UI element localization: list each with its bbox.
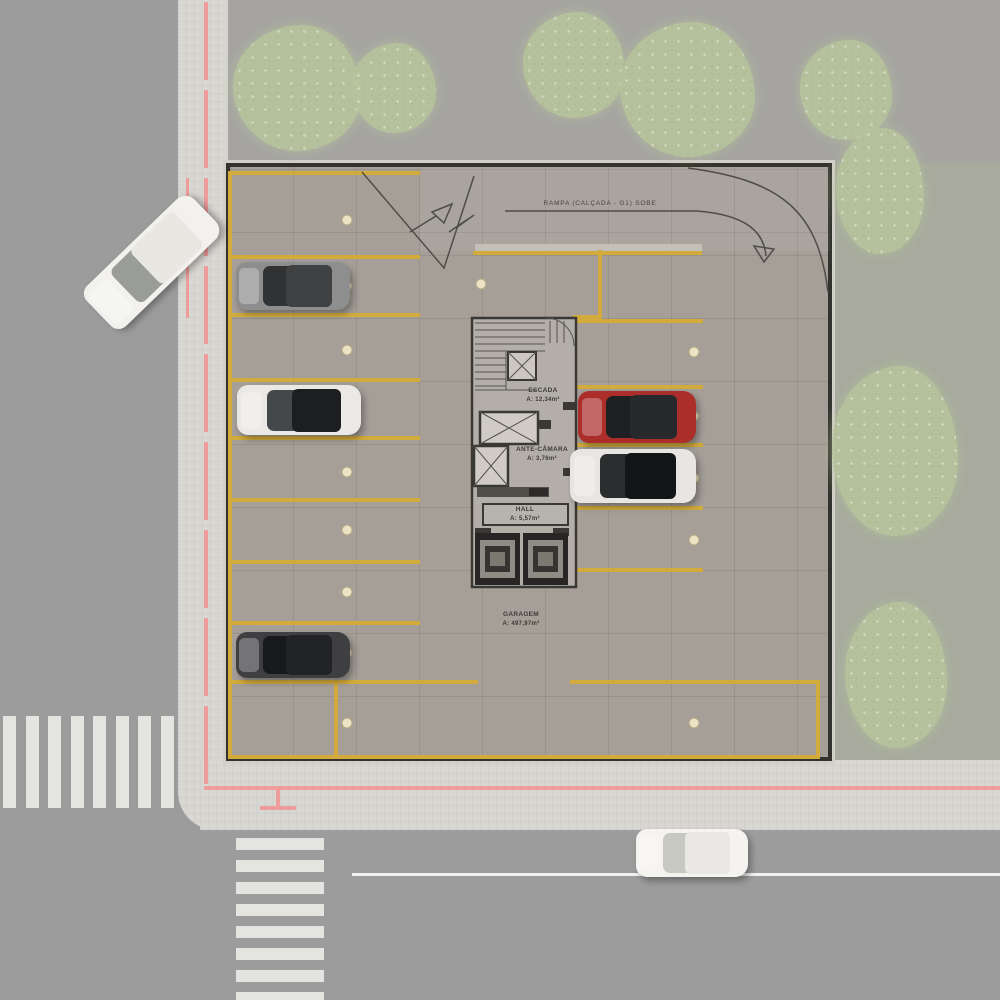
crosswalk-stripe-left xyxy=(3,716,16,808)
tree xyxy=(523,12,625,118)
parked-car-red xyxy=(578,391,696,443)
garage-area: A: 497,97m² xyxy=(503,620,540,628)
parking-line xyxy=(577,506,703,510)
car-roof xyxy=(630,395,677,440)
tree xyxy=(832,366,958,536)
crosswalk-stripe-left xyxy=(116,716,129,808)
car-roof xyxy=(685,832,730,873)
car-roof xyxy=(292,389,342,432)
parking-line xyxy=(230,621,420,625)
hall-name: HALL xyxy=(516,506,535,513)
garage-label: GARAGEM A: 497,97m² xyxy=(503,611,540,628)
parked-car-gray xyxy=(236,262,350,310)
site-plan: RAMPA (CALÇADA - G1) SOBE ESCADA A: 12,3… xyxy=(0,0,1000,1000)
stall-marker xyxy=(689,535,700,546)
tree xyxy=(233,25,361,151)
stall-marker xyxy=(342,718,353,729)
car-roof xyxy=(286,635,332,675)
stall-marker xyxy=(342,587,353,598)
parking-line xyxy=(228,171,420,175)
parking-line xyxy=(598,250,602,318)
parking-line xyxy=(577,319,703,323)
sidewalk-left xyxy=(178,0,228,782)
crosswalk-stripe-bottom xyxy=(236,992,324,1000)
parking-line xyxy=(230,313,420,317)
parking-line xyxy=(577,568,703,572)
crosswalk-stripe-left xyxy=(26,716,39,808)
street-car-bottom xyxy=(636,829,748,877)
parked-car-white-black-roof xyxy=(570,449,696,503)
stall-marker xyxy=(342,345,353,356)
property-line xyxy=(204,2,208,786)
parked-car-white xyxy=(237,385,361,435)
car-roof xyxy=(625,453,675,499)
car-hood xyxy=(239,638,258,672)
crosswalk-stripe-left xyxy=(93,716,106,808)
property-line xyxy=(204,786,1000,790)
car-hood xyxy=(241,392,262,429)
stall-marker xyxy=(342,467,353,478)
crosswalk-stripe-bottom xyxy=(236,970,324,982)
stall-marker xyxy=(689,347,700,358)
crosswalk-stripe-left xyxy=(138,716,151,808)
tree xyxy=(620,22,755,157)
stair-name: ESCADA xyxy=(528,387,557,394)
crosswalk-stripe-bottom xyxy=(236,838,324,850)
crosswalk-stripe-bottom xyxy=(236,904,324,916)
antechamber-area: A: 3,76m² xyxy=(516,455,568,463)
property-line xyxy=(260,806,296,810)
tree xyxy=(352,43,436,133)
car-roof xyxy=(286,265,332,306)
crosswalk-stripe-bottom xyxy=(236,860,324,872)
stair-area: A: 12,34m² xyxy=(526,396,559,404)
parking-line xyxy=(228,171,232,759)
parking-line xyxy=(577,443,703,447)
parking-line xyxy=(230,255,420,259)
crosswalk-stripe-left xyxy=(48,716,61,808)
crosswalk-stripe-bottom xyxy=(236,926,324,938)
tree xyxy=(836,128,924,254)
car-hood xyxy=(582,398,602,436)
parking-line xyxy=(334,684,338,755)
crosswalk-stripe-left xyxy=(161,716,174,808)
crosswalk-stripe-bottom xyxy=(236,882,324,894)
car-hood xyxy=(574,456,595,496)
ramp-label: RAMPA (CALÇADA - G1) SOBE xyxy=(543,200,656,209)
parking-line xyxy=(816,684,820,755)
tree xyxy=(845,602,947,748)
hall-label: HALL A: 5,57m² xyxy=(510,506,540,523)
antechamber-label: ANTE-CÂMARA A: 3,76m² xyxy=(516,446,568,463)
sidewalk-bottom xyxy=(200,760,1000,830)
parking-line xyxy=(230,436,420,440)
parking-line xyxy=(230,378,420,382)
stall-marker xyxy=(689,718,700,729)
car-hood xyxy=(639,835,658,871)
parking-line xyxy=(577,385,703,389)
crosswalk-stripe-left xyxy=(71,716,84,808)
parking-line xyxy=(473,251,702,255)
tree xyxy=(800,40,892,140)
car-hood xyxy=(239,268,258,304)
parking-line xyxy=(228,755,820,759)
antechamber-name: ANTE-CÂMARA xyxy=(516,446,568,453)
parking-line xyxy=(570,680,820,684)
stall-marker xyxy=(342,215,353,226)
stair-label: ESCADA A: 12,34m² xyxy=(526,387,559,404)
ramp-area xyxy=(420,167,830,251)
hall-area: A: 5,57m² xyxy=(510,515,540,523)
stall-marker xyxy=(342,525,353,536)
stall-marker xyxy=(476,279,487,290)
crosswalk-stripe-bottom xyxy=(236,948,324,960)
parking-line xyxy=(230,498,420,502)
garage-name: GARAGEM xyxy=(503,611,539,618)
parking-line xyxy=(230,560,420,564)
property-line xyxy=(276,788,280,808)
parking-line xyxy=(228,680,478,684)
parked-car-black xyxy=(236,632,350,678)
